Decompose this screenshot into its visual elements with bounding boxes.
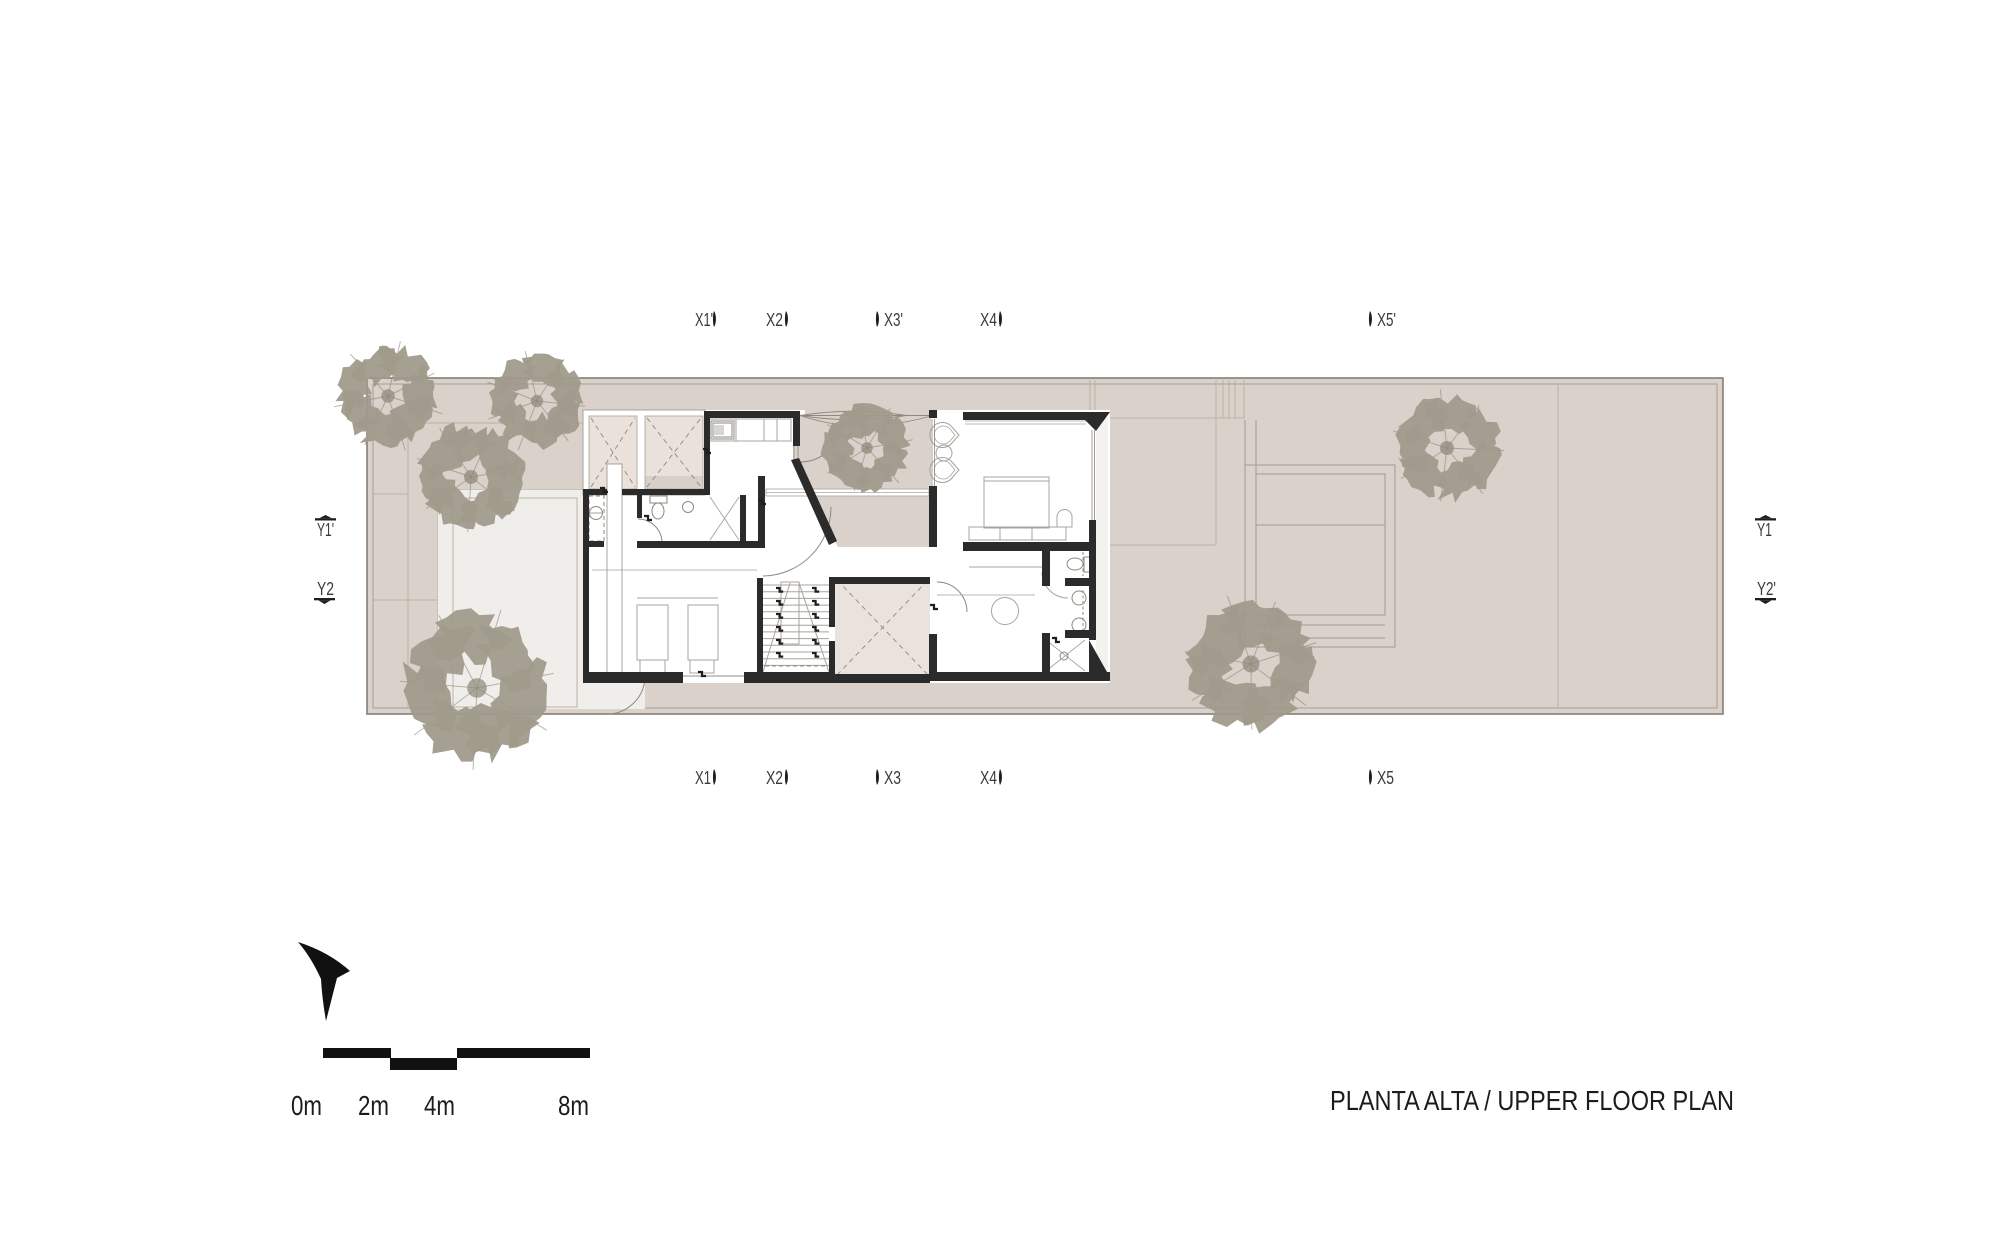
svg-text:PLANTA ALTA / UPPER FLOOR PLAN: PLANTA ALTA / UPPER FLOOR PLAN — [1330, 1085, 1734, 1116]
svg-text:8m: 8m — [558, 1090, 589, 1121]
svg-text:Y2': Y2' — [1757, 579, 1776, 599]
svg-text:X5': X5' — [1377, 310, 1396, 330]
svg-text:X4: X4 — [980, 310, 997, 330]
svg-text:X4: X4 — [980, 768, 997, 788]
svg-text:4m: 4m — [424, 1090, 455, 1121]
svg-text:X3: X3 — [884, 768, 901, 788]
svg-text:Y2: Y2 — [317, 579, 334, 599]
svg-text:X3': X3' — [884, 310, 903, 330]
svg-text:Y1: Y1 — [1757, 520, 1772, 540]
svg-text:X2: X2 — [766, 310, 783, 330]
svg-text:X5: X5 — [1377, 768, 1394, 788]
svg-text:Y1': Y1' — [317, 520, 334, 540]
svg-text:X1: X1 — [695, 768, 711, 788]
svg-text:2m: 2m — [358, 1090, 389, 1121]
svg-text:0m: 0m — [291, 1090, 322, 1121]
svg-text:X2: X2 — [766, 768, 783, 788]
svg-text:X1': X1' — [695, 310, 713, 330]
